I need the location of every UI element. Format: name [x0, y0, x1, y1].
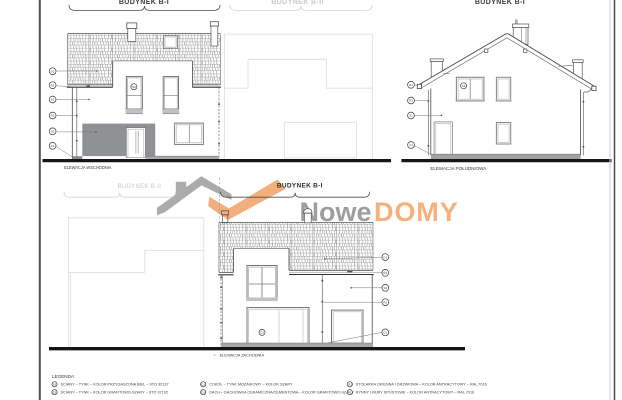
svg-text:COKÓŁ – TYNK MOZAIKOWY – K: COKÓŁ – TYNK MOZAIKOWY – KOLOR SZARY: [209, 382, 293, 387]
svg-text:R1: R1: [383, 300, 387, 304]
svg-text:R1: R1: [409, 99, 413, 103]
svg-text:ELEWACJA WSCHODNIA: ELEWACJA WSCHODNIA: [64, 165, 112, 170]
svg-text:S1: S1: [383, 286, 387, 290]
svg-text:STOLARKA OKIENNA I DRZWIOWA –: STOLARKA OKIENNA I DRZWIOWA – KOLOR ANTR…: [356, 383, 487, 387]
svg-text:S3: S3: [348, 383, 352, 387]
svg-text:R1: R1: [409, 83, 413, 87]
svg-text:D1: D1: [383, 255, 387, 259]
svg-text:C1: C1: [409, 143, 413, 147]
svg-text:BUDYNEK B-I: BUDYNEK B-I: [475, 0, 525, 6]
svg-text:ELEWACJA POŁUDNIOWA: ELEWACJA POŁUDNIOWA: [430, 166, 487, 171]
svg-text:LEGENDA:: LEGENDA:: [52, 374, 75, 379]
svg-text:ŚCIANY – TYNK – KOLOR: ŚCIANY – TYNK – KOLOR PRZYGASZONA BIEL –…: [61, 382, 169, 387]
svg-text:RYNNY I RURY SPUSTOWE – KOLO: RYNNY I RURY SPUSTOWE – KOLOR ANTRACYTOW…: [356, 390, 474, 394]
svg-text:S3: S3: [462, 84, 466, 88]
svg-text:BUDYNEK B-I: BUDYNEK B-I: [119, 0, 169, 6]
svg-text:D1: D1: [201, 390, 205, 394]
svg-text:BUDYNEK B-II: BUDYNEK B-II: [271, 0, 324, 6]
svg-text:DOMY: DOMY: [374, 197, 459, 227]
svg-text:BUDYNEK B-II: BUDYNEK B-II: [118, 184, 162, 190]
svg-text:R1: R1: [348, 390, 352, 394]
svg-text:S3: S3: [132, 85, 136, 89]
svg-text:D1: D1: [51, 69, 55, 73]
svg-text:DACH – DACHÓWKA CERAMICZNA/C: DACH – DACHÓWKA CERAMICZNA/CEMENTOWA – K…: [209, 389, 354, 394]
svg-text:ELEWACJA ZACHODNIA: ELEWACJA ZACHODNIA: [220, 352, 265, 357]
svg-text:ŚCIANY – TYNK – KOLOR: ŚCIANY – TYNK – KOLOR GRAFITOWO-SZARY – …: [61, 389, 169, 394]
svg-text:C1: C1: [201, 383, 205, 387]
svg-text:S1: S1: [51, 98, 55, 102]
svg-text:S2: S2: [53, 390, 57, 394]
svg-text:C1: C1: [260, 331, 264, 335]
svg-text:S1: S1: [409, 114, 413, 118]
svg-text:S2: S2: [51, 130, 55, 134]
svg-text:C1: C1: [383, 331, 387, 335]
svg-text:C1: C1: [51, 144, 55, 148]
svg-text:R1: R1: [51, 114, 55, 118]
svg-text:R1: R1: [383, 271, 387, 275]
svg-text:BUDYNEK B-I: BUDYNEK B-I: [277, 182, 323, 189]
svg-text:R1: R1: [51, 83, 55, 87]
svg-text:S1: S1: [53, 383, 57, 387]
